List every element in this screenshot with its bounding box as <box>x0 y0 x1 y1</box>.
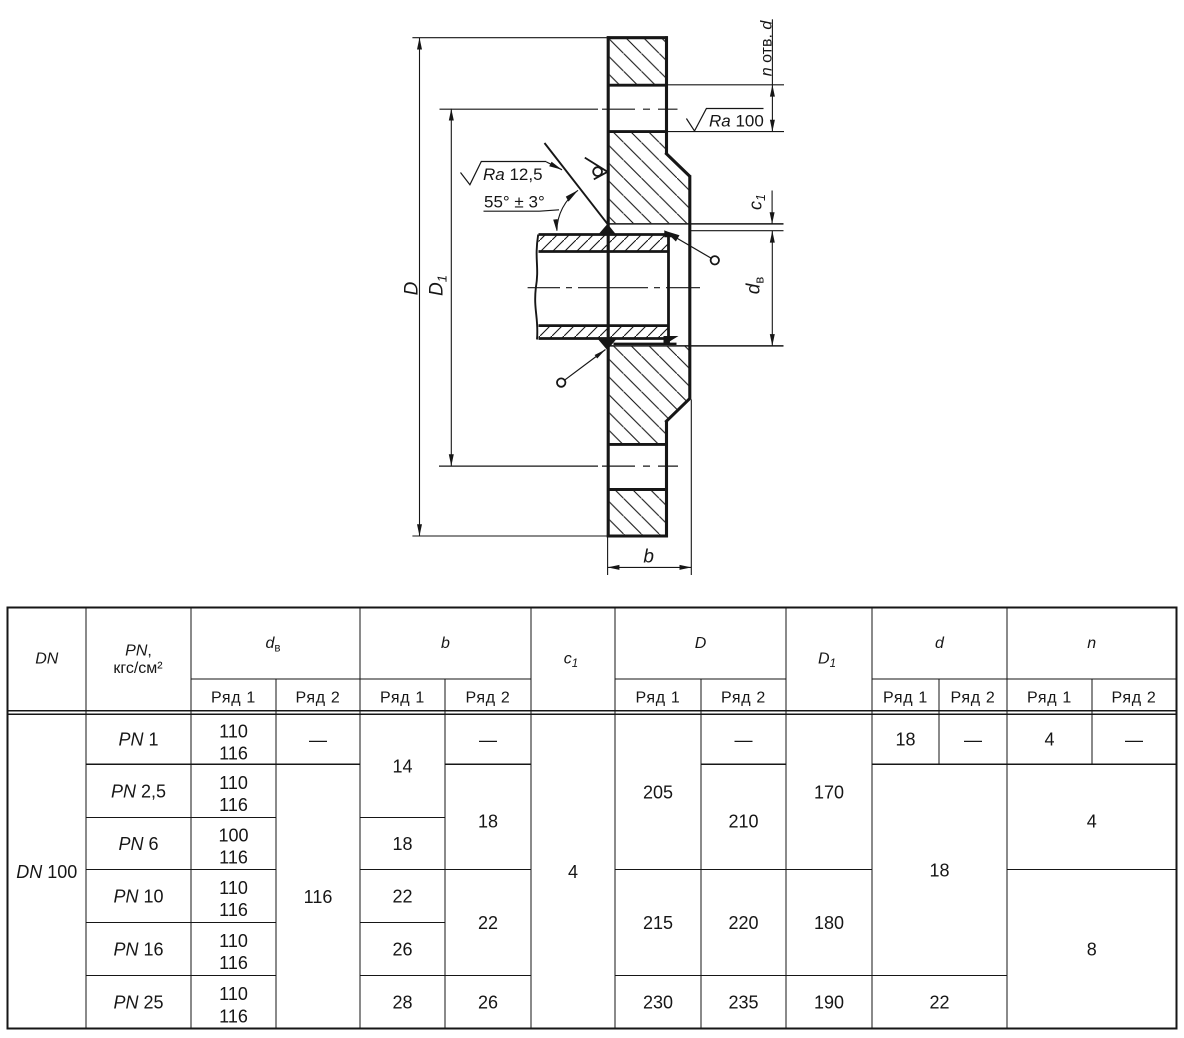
svg-text:кгс/см²: кгс/см² <box>113 660 163 677</box>
svg-text:—: — <box>735 730 753 750</box>
svg-text:PN 16: PN 16 <box>113 939 163 959</box>
svg-text:170: 170 <box>814 782 844 802</box>
svg-text:n отв. d: n отв. d <box>759 20 776 77</box>
svg-text:100: 100 <box>218 826 248 846</box>
svg-text:22: 22 <box>478 913 498 933</box>
svg-text:116: 116 <box>219 953 248 973</box>
svg-text:c1: c1 <box>564 651 578 671</box>
svg-text:b: b <box>441 635 450 652</box>
svg-text:Ряд 2: Ряд 2 <box>951 689 996 706</box>
svg-text:26: 26 <box>392 939 412 959</box>
svg-text:8: 8 <box>1087 940 1097 960</box>
svg-text:Ряд 1: Ряд 1 <box>211 689 256 706</box>
svg-text:22: 22 <box>392 886 412 906</box>
svg-text:—: — <box>479 730 497 750</box>
svg-text:Ряд 2: Ряд 2 <box>466 689 511 706</box>
svg-text:Ra 12,5: Ra 12,5 <box>483 165 543 184</box>
svg-text:PN 25: PN 25 <box>113 993 163 1013</box>
svg-text:D1: D1 <box>427 275 450 296</box>
svg-text:4: 4 <box>568 862 578 882</box>
svg-text:DN 100: DN 100 <box>16 862 77 882</box>
svg-text:18: 18 <box>929 860 949 880</box>
svg-text:26: 26 <box>478 993 498 1013</box>
svg-text:dв: dв <box>265 635 280 655</box>
svg-text:Ряд 1: Ряд 1 <box>636 689 681 706</box>
svg-text:116: 116 <box>219 1006 248 1026</box>
svg-text:18: 18 <box>392 834 412 854</box>
svg-text:—: — <box>309 730 327 750</box>
svg-text:c1: c1 <box>746 194 769 210</box>
svg-text:116: 116 <box>219 848 248 868</box>
svg-text:—: — <box>1125 730 1143 750</box>
svg-text:PN 6: PN 6 <box>118 834 158 854</box>
svg-text:Ряд 1: Ряд 1 <box>1027 689 1072 706</box>
svg-text:180: 180 <box>814 913 844 933</box>
svg-text:D: D <box>401 281 422 295</box>
svg-text:55° ± 3°: 55° ± 3° <box>484 193 545 212</box>
svg-text:d: d <box>935 635 945 652</box>
svg-text:235: 235 <box>728 993 758 1013</box>
svg-text:190: 190 <box>814 993 844 1013</box>
svg-text:D1: D1 <box>818 651 836 671</box>
svg-text:110: 110 <box>219 931 248 951</box>
svg-text:dв: dв <box>744 277 767 295</box>
svg-text:18: 18 <box>478 812 498 832</box>
svg-text:215: 215 <box>643 913 673 933</box>
svg-text:n: n <box>1087 635 1096 652</box>
svg-text:116: 116 <box>304 887 333 907</box>
svg-text:D: D <box>695 635 707 652</box>
svg-text:b: b <box>643 547 654 568</box>
svg-text:28: 28 <box>392 993 412 1013</box>
svg-text:—: — <box>964 730 982 750</box>
svg-text:DN: DN <box>35 651 59 668</box>
svg-text:Ra 100: Ra 100 <box>709 112 764 131</box>
svg-text:PN 10: PN 10 <box>113 886 163 906</box>
svg-text:116: 116 <box>219 900 248 920</box>
svg-text:PN 2,5: PN 2,5 <box>111 781 166 801</box>
svg-text:4: 4 <box>1044 730 1054 750</box>
svg-text:110: 110 <box>219 721 248 741</box>
svg-text:230: 230 <box>643 993 673 1013</box>
svg-text:210: 210 <box>728 812 758 832</box>
svg-text:220: 220 <box>728 913 758 933</box>
svg-text:4: 4 <box>1087 812 1097 832</box>
svg-text:116: 116 <box>219 795 248 815</box>
svg-text:Ряд 2: Ряд 2 <box>721 689 766 706</box>
svg-text:22: 22 <box>929 993 949 1013</box>
svg-text:110: 110 <box>219 878 248 898</box>
svg-text:Ряд 2: Ряд 2 <box>296 689 341 706</box>
svg-text:205: 205 <box>643 782 673 802</box>
svg-text:PN,: PN, <box>125 643 152 660</box>
svg-text:110: 110 <box>219 773 248 793</box>
svg-text:Ряд 1: Ряд 1 <box>883 689 928 706</box>
svg-text:14: 14 <box>392 756 412 776</box>
svg-text:110: 110 <box>219 984 248 1004</box>
svg-text:18: 18 <box>895 730 915 750</box>
svg-text:PN 1: PN 1 <box>118 730 158 750</box>
svg-text:116: 116 <box>219 744 248 764</box>
svg-text:Ряд 1: Ряд 1 <box>380 689 425 706</box>
svg-text:Ряд 2: Ряд 2 <box>1112 689 1157 706</box>
